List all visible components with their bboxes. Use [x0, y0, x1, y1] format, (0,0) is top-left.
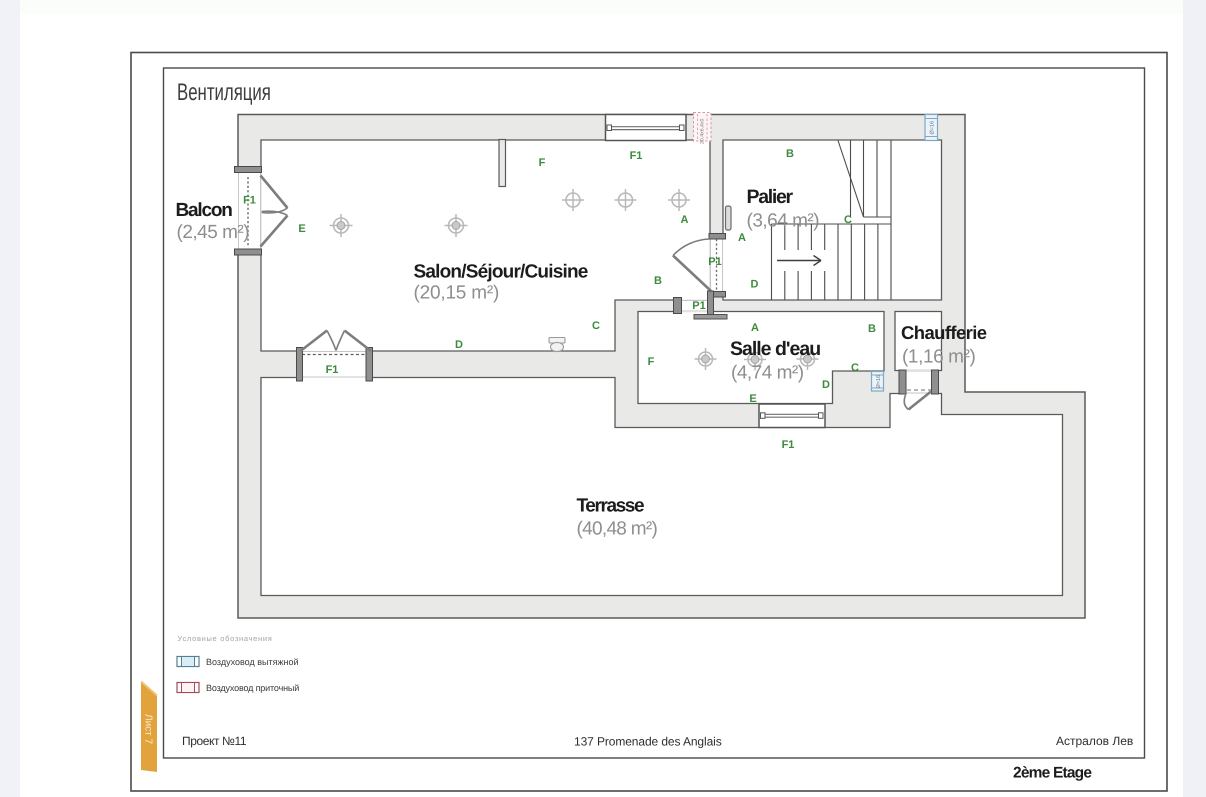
svg-text:F: F: [539, 157, 546, 169]
svg-text:F1: F1: [630, 150, 643, 162]
svg-text:Лист 7: Лист 7: [143, 714, 154, 745]
svg-text:D: D: [751, 279, 759, 291]
svg-text:A: A: [738, 232, 746, 244]
svg-text:A: A: [681, 214, 689, 226]
svg-text:F1: F1: [782, 439, 795, 451]
svg-text:Salon/Séjour/Cuisine: Salon/Séjour/Cuisine: [414, 262, 588, 283]
svg-text:Palier: Palier: [747, 186, 794, 208]
svg-text:Balcon: Balcon: [176, 200, 233, 221]
svg-text:Chaufferie: Chaufferie: [901, 322, 987, 343]
svg-text:(4,74 m²): (4,74 m²): [731, 363, 804, 384]
svg-text:Воздуховод приточный: Воздуховод приточный: [206, 683, 299, 693]
svg-text:P1: P1: [708, 256, 721, 268]
svg-text:F1: F1: [326, 364, 339, 376]
svg-text:Вентиляция: Вентиляция: [177, 79, 271, 106]
svg-text:2ème Etage: 2ème Etage: [1013, 765, 1092, 782]
svg-text:D: D: [455, 339, 463, 351]
svg-text:137 Promenade des Anglais: 137 Promenade des Anglais: [574, 735, 722, 749]
svg-text:Астралов Лев: Астралов Лев: [1056, 734, 1133, 748]
svg-text:C: C: [844, 214, 852, 226]
svg-text:Salle d'eau: Salle d'eau: [730, 338, 820, 360]
svg-text:C: C: [851, 362, 859, 374]
svg-text:B: B: [654, 275, 662, 287]
svg-text:Terrasse: Terrasse: [577, 496, 644, 517]
svg-text:E: E: [298, 223, 305, 235]
svg-text:F1: F1: [243, 195, 256, 207]
svg-text:P1: P1: [692, 300, 705, 312]
svg-text:(1,16 m²): (1,16 m²): [902, 347, 976, 368]
svg-text:A: A: [751, 322, 759, 334]
svg-text:D: D: [822, 379, 830, 391]
svg-text:Воздуховод вытяжной: Воздуховод вытяжной: [206, 657, 299, 667]
svg-text:(2,45 m²): (2,45 m²): [177, 222, 250, 243]
svg-text:Условные обозначения: Условные обозначения: [178, 634, 273, 643]
svg-text:(40,48 m²): (40,48 m²): [577, 519, 658, 540]
svg-text:Ø=16: Ø=16: [930, 121, 936, 135]
svg-text:B: B: [786, 148, 794, 160]
svg-text:Ø=16: Ø=16: [876, 375, 882, 389]
svg-text:C: C: [592, 320, 600, 332]
svg-text:E: E: [749, 393, 756, 405]
svg-text:F: F: [648, 356, 655, 368]
svg-text:B: B: [868, 323, 876, 335]
svg-text:(3,64 m²): (3,64 m²): [747, 211, 820, 232]
svg-text:20,4x6,4x0: 20,4x6,4x0: [700, 119, 706, 144]
svg-text:Проект №11: Проект №11: [182, 734, 247, 748]
svg-text:(20,15 m²): (20,15 m²): [414, 283, 500, 304]
